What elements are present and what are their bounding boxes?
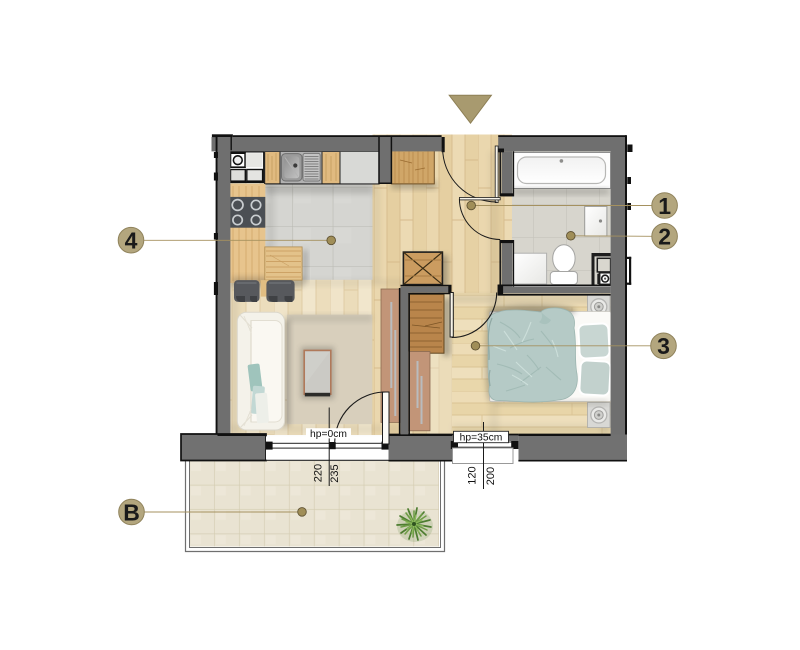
- svg-text:220: 220: [313, 464, 325, 482]
- svg-text:1: 1: [658, 193, 671, 219]
- svg-text:235: 235: [329, 464, 341, 482]
- svg-text:200: 200: [485, 467, 497, 485]
- svg-text:hp=35cm: hp=35cm: [460, 432, 503, 443]
- svg-text:hp=0cm: hp=0cm: [310, 429, 347, 440]
- svg-text:B: B: [123, 499, 140, 525]
- svg-text:4: 4: [125, 228, 138, 254]
- svg-text:3: 3: [657, 333, 670, 359]
- svg-text:2: 2: [658, 224, 671, 250]
- svg-text:120: 120: [467, 466, 479, 484]
